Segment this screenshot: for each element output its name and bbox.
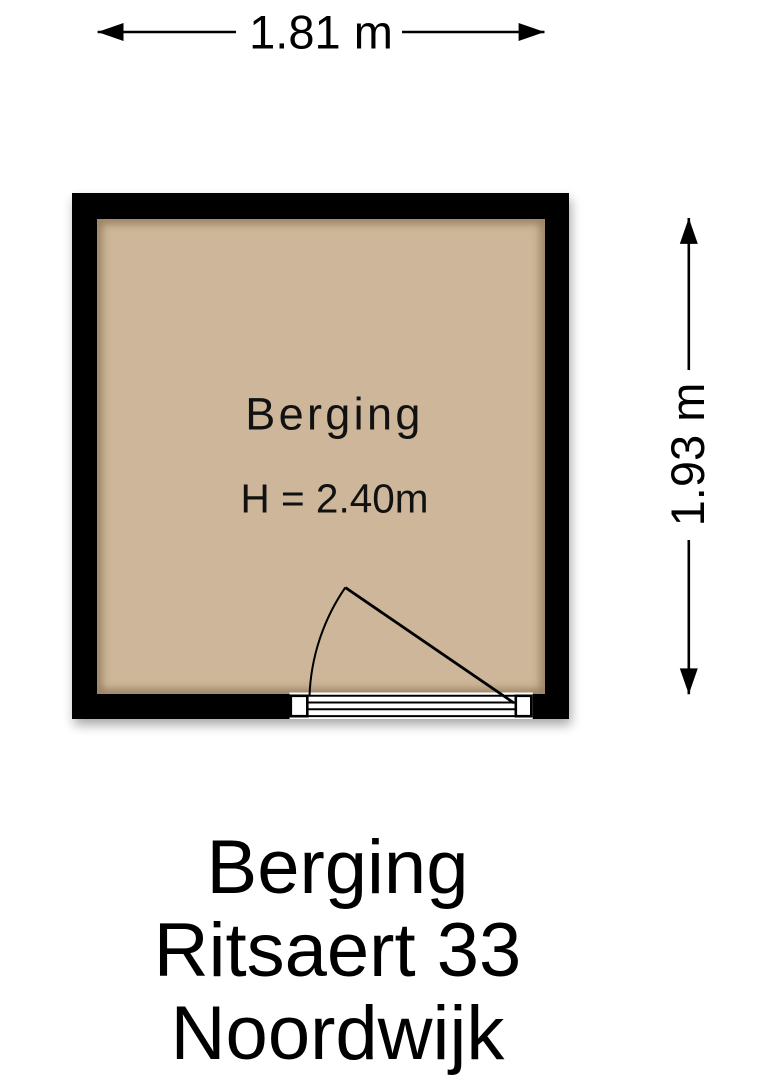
svg-text:Noordwijk: Noordwijk [171,991,506,1076]
svg-text:1.93 m: 1.93 m [661,383,714,527]
svg-text:Berging: Berging [207,825,469,910]
svg-text:Berging: Berging [245,389,424,440]
svg-text:1.81 m: 1.81 m [249,6,393,59]
svg-text:H = 2.40m: H = 2.40m [241,476,429,522]
svg-text:Ritsaert 33: Ritsaert 33 [154,908,522,993]
